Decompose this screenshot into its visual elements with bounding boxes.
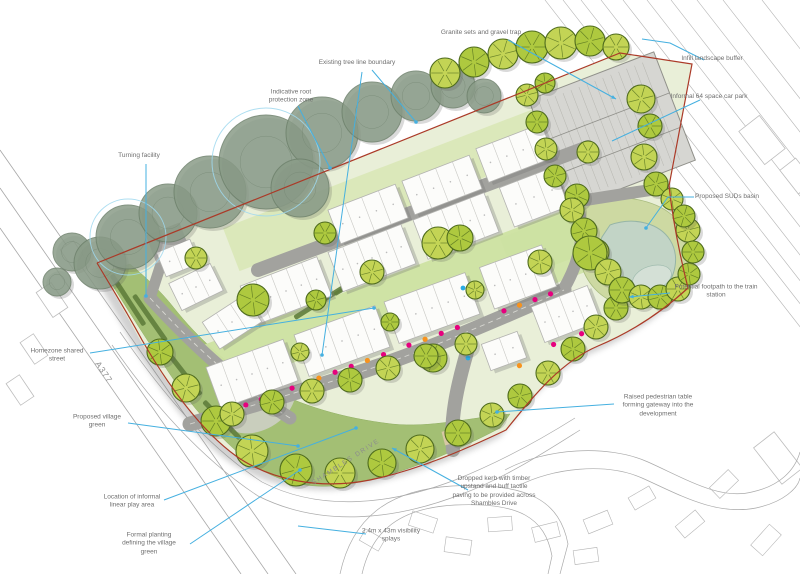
proposed-tree — [575, 26, 608, 59]
masterplan-canvas: Granite sets and gravel trapInfill lands… — [0, 0, 800, 574]
site-plan-svg — [0, 0, 800, 574]
leader-line-formal-planting-village-green — [190, 470, 300, 544]
existing-tree — [467, 79, 504, 116]
plot-marker-dot — [461, 286, 466, 291]
proposed-tree — [545, 27, 580, 62]
leader-line-visibility-splays — [298, 526, 366, 534]
